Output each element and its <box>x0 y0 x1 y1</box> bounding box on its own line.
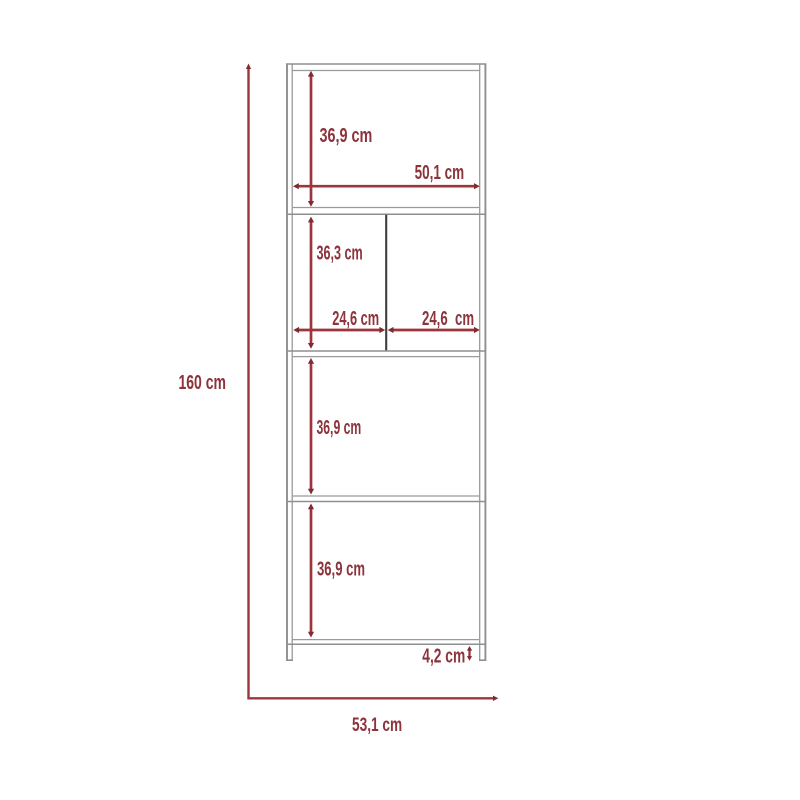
svg-text:24,6 cm: 24,6 cm <box>422 307 474 329</box>
svg-text:36,9 cm: 36,9 cm <box>317 416 362 439</box>
svg-text:160 cm: 160 cm <box>179 370 226 393</box>
svg-text:36,9 cm: 36,9 cm <box>320 124 373 147</box>
svg-text:50,1 cm: 50,1 cm <box>415 161 465 183</box>
svg-text:53,1 cm: 53,1 cm <box>352 714 402 736</box>
svg-text:24,6 cm: 24,6 cm <box>332 307 379 330</box>
svg-text:36,9 cm: 36,9 cm <box>317 558 365 580</box>
svg-text:4,2 cm: 4,2 cm <box>422 644 465 667</box>
svg-text:36,3 cm: 36,3 cm <box>317 241 363 264</box>
